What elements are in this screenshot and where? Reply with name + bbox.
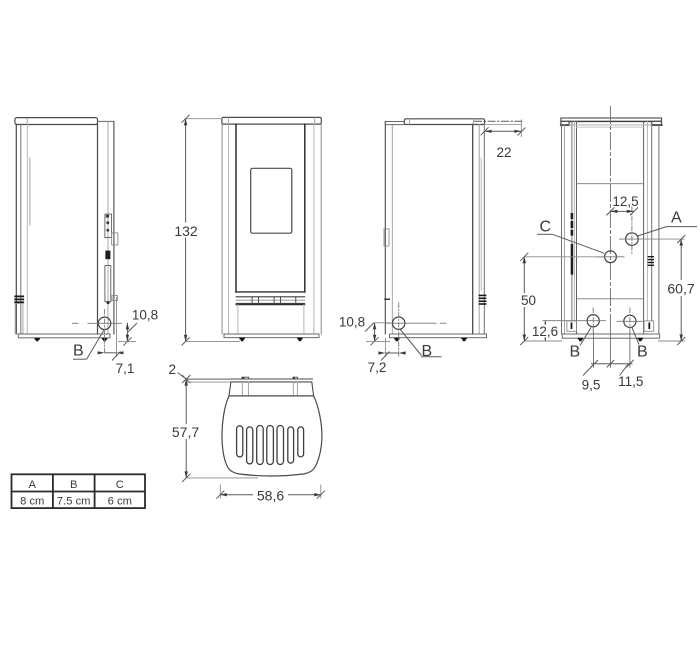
svg-text:B: B [570,344,581,361]
svg-text:B: B [637,344,648,361]
svg-text:A: A [671,210,682,227]
svg-text:B: B [422,343,433,360]
svg-text:A: A [28,479,36,491]
svg-text:12,6: 12,6 [532,324,558,339]
svg-text:7,2: 7,2 [368,360,387,375]
svg-text:10,8: 10,8 [132,308,158,323]
svg-text:9,5: 9,5 [582,378,601,393]
svg-text:10,8: 10,8 [339,315,365,330]
svg-text:C: C [540,219,552,236]
svg-text:50: 50 [521,293,536,308]
svg-text:11,5: 11,5 [618,374,643,389]
svg-text:57,7: 57,7 [172,424,199,440]
svg-text:60,7: 60,7 [667,281,694,297]
svg-text:22: 22 [496,145,511,160]
svg-text:2: 2 [169,362,177,377]
svg-text:12,5: 12,5 [612,194,638,209]
svg-text:58,6: 58,6 [257,488,284,504]
svg-text:132: 132 [174,223,198,239]
svg-text:7.5 cm: 7.5 cm [57,496,91,508]
svg-text:B: B [70,479,77,491]
svg-text:8 cm: 8 cm [20,496,44,508]
svg-text:C: C [116,479,124,491]
svg-text:B: B [73,343,84,360]
svg-text:6 cm: 6 cm [108,496,132,508]
svg-text:7,1: 7,1 [116,361,135,376]
